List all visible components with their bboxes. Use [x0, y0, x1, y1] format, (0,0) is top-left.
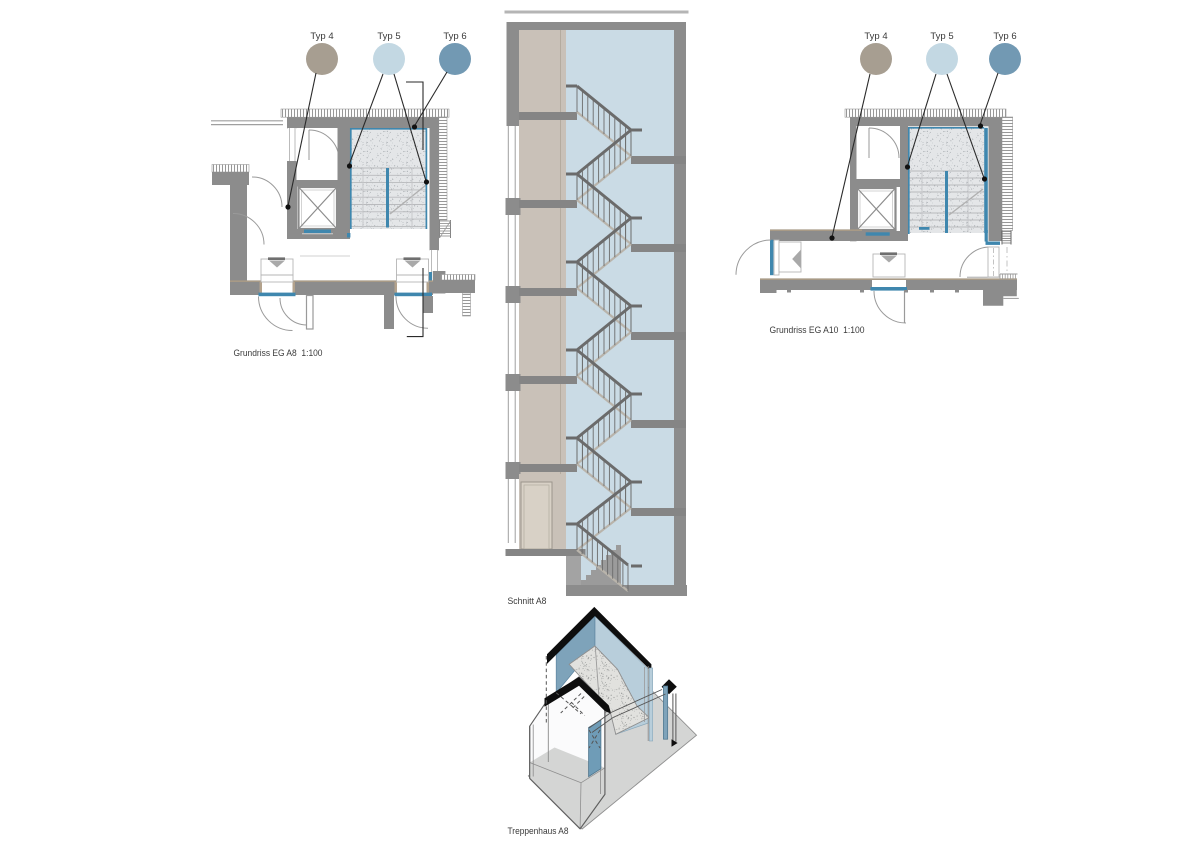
svg-text:Typ 5: Typ 5 [930, 31, 953, 42]
svg-text:Grundriss EG A8 1:100: Grundriss EG A8 1:100 [234, 348, 323, 358]
svg-text:Typ 6: Typ 6 [993, 31, 1016, 42]
svg-text:Typ 4: Typ 4 [310, 31, 333, 42]
svg-text:Schnitt A8: Schnitt A8 [508, 596, 547, 606]
svg-text:Typ 5: Typ 5 [377, 31, 400, 42]
svg-text:Treppenhaus A8: Treppenhaus A8 [508, 826, 569, 836]
svg-text:Grundriss EG A10 1:100: Grundriss EG A10 1:100 [770, 325, 865, 335]
svg-text:Typ 6: Typ 6 [443, 31, 466, 42]
svg-text:Typ 4: Typ 4 [864, 31, 887, 42]
